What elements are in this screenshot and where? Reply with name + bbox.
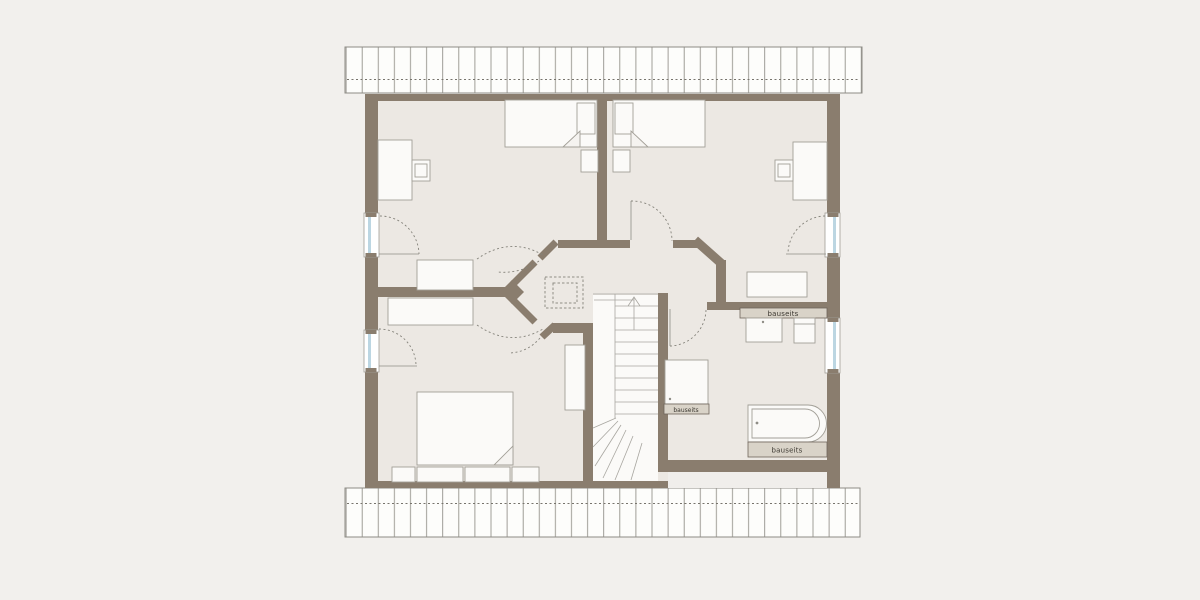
- bauseits-label-shower: bauseits: [673, 407, 698, 414]
- desk-chair-seat: [778, 164, 790, 177]
- sideboard: [747, 272, 807, 297]
- dresser: [388, 298, 473, 325]
- nightstand: [512, 467, 539, 482]
- bathtub-inner: [752, 409, 820, 438]
- shower: [665, 360, 708, 404]
- desk: [378, 140, 412, 200]
- staircase: [593, 294, 658, 481]
- bed-pillow: [577, 103, 595, 134]
- south-knee-strip: [668, 472, 827, 488]
- desk: [793, 142, 827, 200]
- bench: [417, 260, 473, 290]
- bed-pillow: [615, 103, 633, 134]
- window-right-2: [825, 318, 840, 373]
- floor-plan-canvas: bauseits bauseits bauseits: [0, 0, 1200, 600]
- nightstand: [613, 150, 630, 172]
- bauseits-label-bathtub: bauseits: [771, 447, 802, 455]
- washbasin-tap: [762, 321, 764, 323]
- nightstand: [392, 467, 415, 482]
- headboard-cabinet: [465, 467, 510, 482]
- double-bed: [417, 392, 513, 465]
- wardrobe: [565, 345, 585, 410]
- bathtub-drain: [756, 422, 759, 425]
- toilet: [794, 318, 815, 343]
- bottom-eave-hatch: [345, 488, 860, 537]
- headboard-cabinet: [417, 467, 463, 482]
- desk-chair-seat: [415, 164, 427, 177]
- bauseits-label-counter: bauseits: [767, 310, 798, 318]
- nightstand: [581, 150, 598, 172]
- top-eave-hatch: [345, 47, 862, 93]
- floor-plan: bauseits bauseits bauseits: [0, 0, 1200, 600]
- shower-drain: [669, 398, 671, 400]
